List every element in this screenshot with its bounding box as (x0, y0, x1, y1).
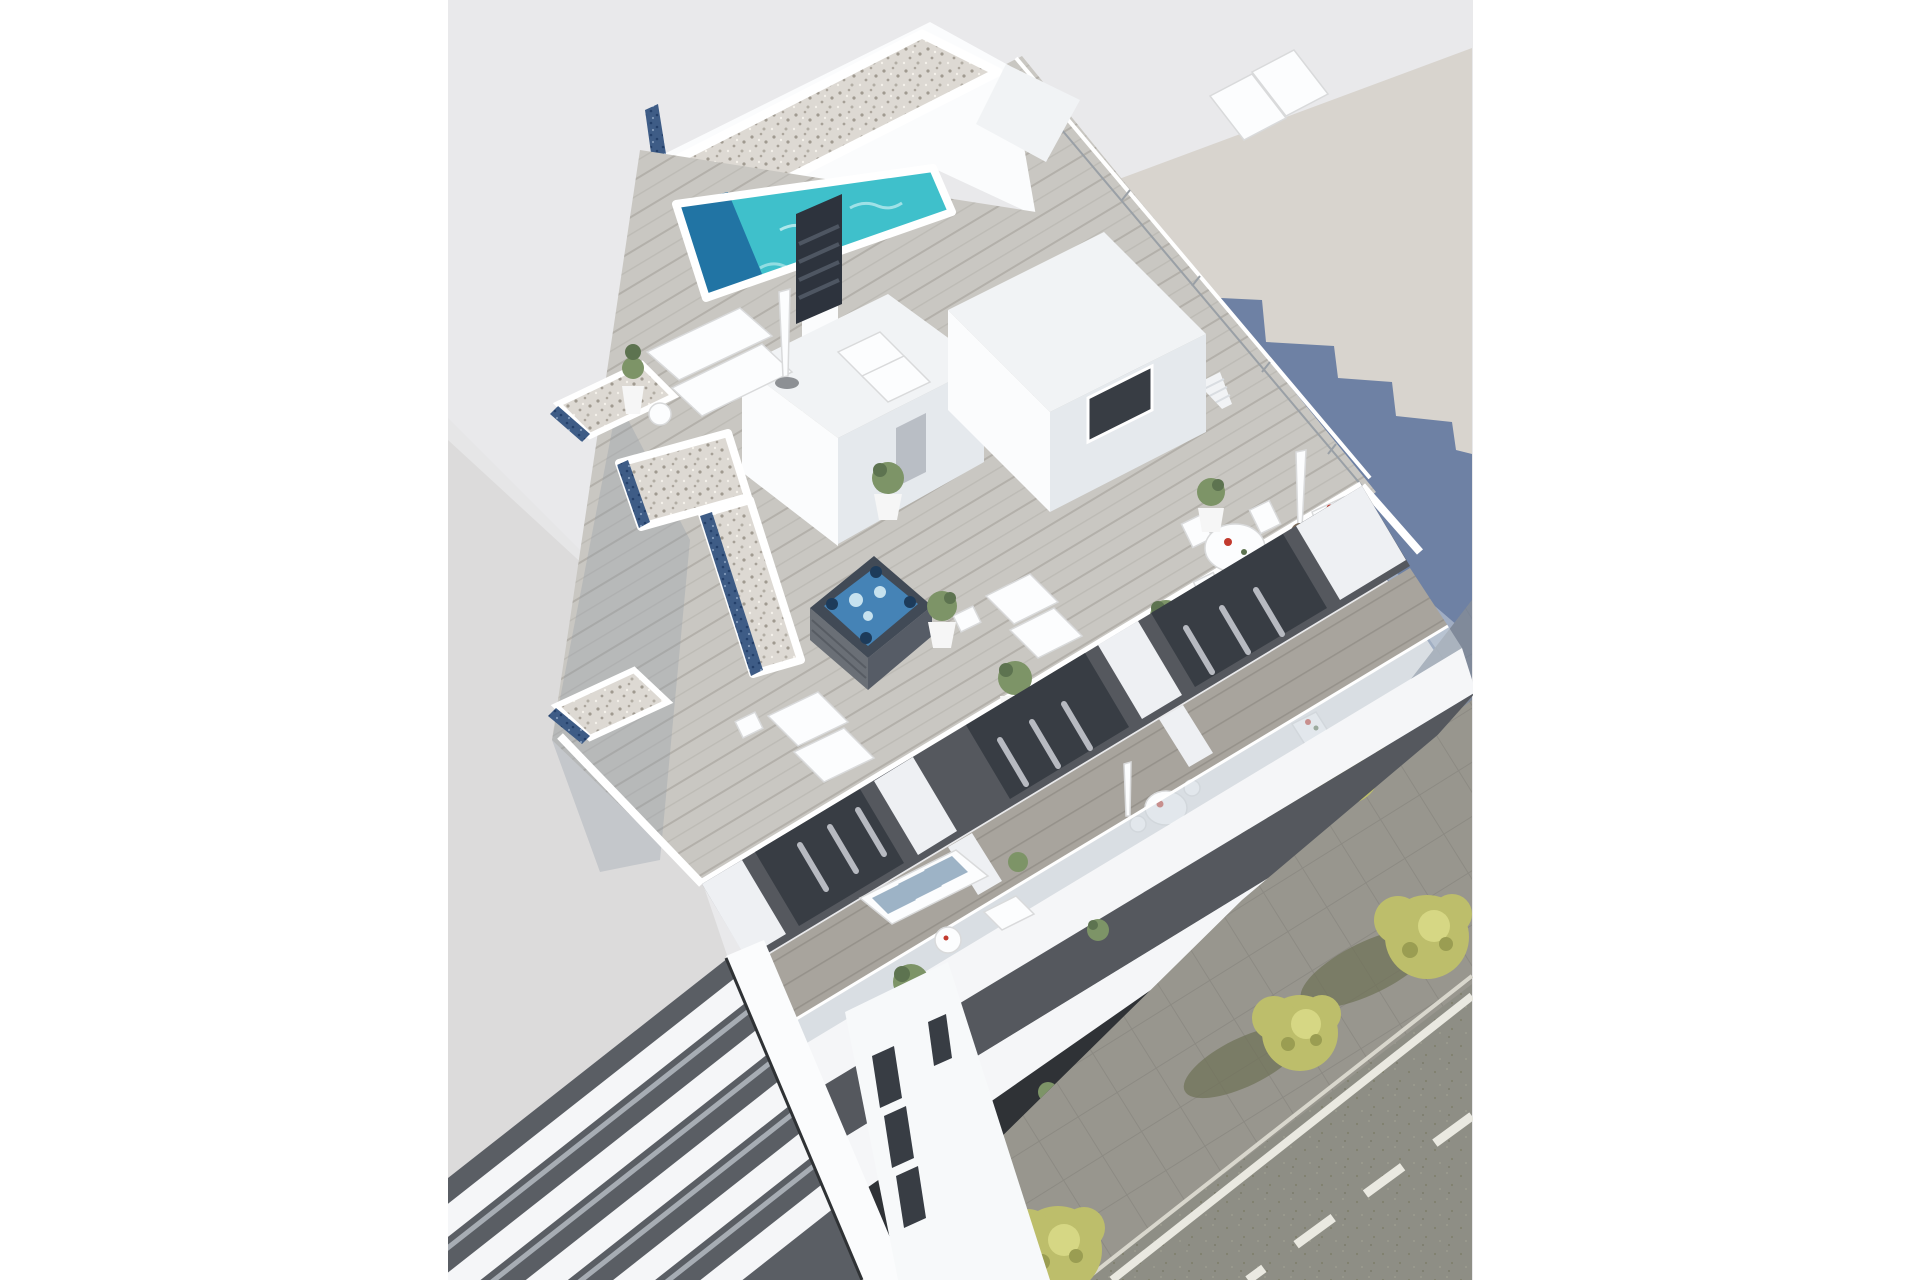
jacuzzi-foam-3 (863, 611, 873, 621)
jacuzzi-seat-3 (904, 596, 916, 608)
coffee-table-item (944, 936, 949, 941)
table-green-item (1241, 549, 1247, 555)
architectural-render: Aerial 3D architectural rendering of a w… (0, 0, 1920, 1280)
jacuzzi-seat-1 (826, 598, 838, 610)
coffee-table (935, 927, 961, 953)
balcony-umbrella (1124, 762, 1131, 816)
umbrella-base (775, 377, 799, 389)
jacuzzi-foam-2 (874, 586, 886, 598)
jacuzzi-foam-1 (849, 593, 863, 607)
scene (404, 0, 1476, 1280)
table-red-item (1224, 538, 1232, 546)
jacuzzi-seat-4 (860, 632, 872, 644)
pouf (649, 403, 671, 425)
jacuzzi-seat-2 (870, 566, 882, 578)
render-canvas: Aerial 3D architectural rendering of a w… (0, 0, 1920, 1280)
